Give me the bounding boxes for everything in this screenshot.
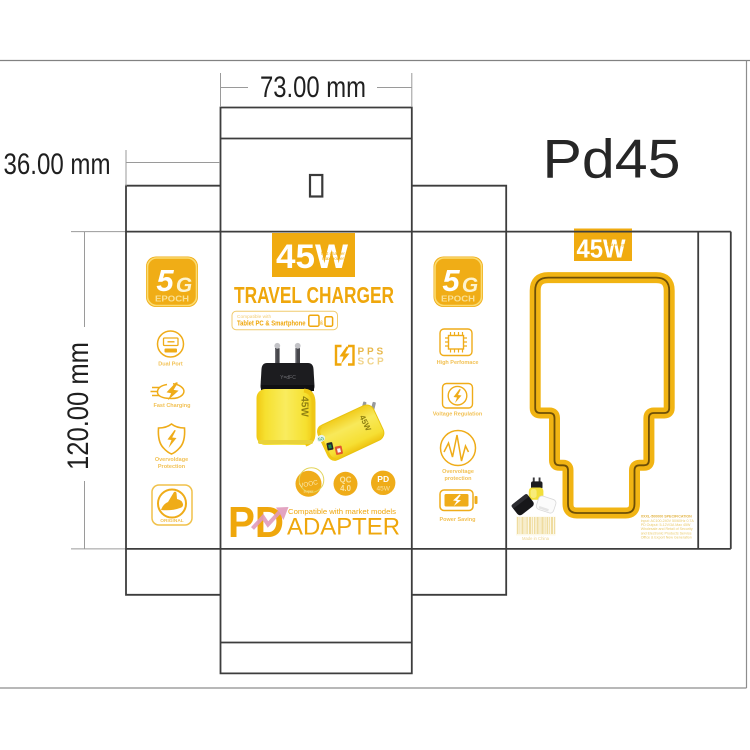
svg-text:Tablet PC & Smartphone: Tablet PC & Smartphone (237, 320, 306, 327)
svg-text:5: 5 (156, 263, 174, 298)
svg-text:Fast Charging: Fast Charging (154, 403, 191, 409)
svg-text:Dual Port: Dual Port (158, 362, 183, 368)
svg-text:max power: max power (322, 256, 345, 261)
svg-text:protection: protection (445, 476, 473, 482)
svg-text:45W: 45W (299, 396, 310, 417)
svg-text:EPOCH: EPOCH (441, 295, 475, 304)
svg-text:ADAPTER: ADAPTER (287, 514, 400, 541)
svg-text:Office & Export New Generation: Office & Export New Generation (641, 536, 692, 540)
svg-text:super: super (303, 489, 314, 494)
svg-text:ORIGINAL: ORIGINAL (160, 518, 184, 524)
svg-text:fast charger: fast charger (607, 243, 628, 247)
svg-text:5: 5 (442, 263, 460, 298)
svg-text:Overvoldage: Overvoldage (155, 457, 188, 463)
svg-text:45W: 45W (377, 486, 391, 493)
svg-text:Made in China: Made in China (522, 536, 550, 541)
svg-text:73.00 mm: 73.00 mm (260, 71, 366, 104)
svg-text:120.00 mm: 120.00 mm (62, 342, 95, 470)
svg-text:Pd45: Pd45 (543, 128, 681, 190)
svg-text:PD: PD (377, 474, 389, 484)
svg-text:4.0: 4.0 (340, 484, 352, 493)
svg-text:EPOCH: EPOCH (155, 295, 189, 304)
svg-text:Overvoltage: Overvoltage (442, 469, 474, 475)
svg-text:Voltage Regulation: Voltage Regulation (433, 412, 483, 418)
svg-text:45W: 45W (577, 236, 627, 264)
svg-text:Y=dFC: Y=dFC (280, 375, 296, 381)
svg-text:Compatible with: Compatible with (237, 314, 271, 320)
svg-text:Protection: Protection (158, 464, 186, 470)
svg-text:High Perfomace: High Perfomace (437, 360, 479, 366)
svg-text:SCP: SCP (358, 357, 387, 368)
svg-text:36.00 mm: 36.00 mm (4, 148, 111, 181)
svg-text:TRAVEL CHARGER: TRAVEL CHARGER (234, 282, 394, 308)
svg-text:Power Saving: Power Saving (439, 517, 475, 523)
